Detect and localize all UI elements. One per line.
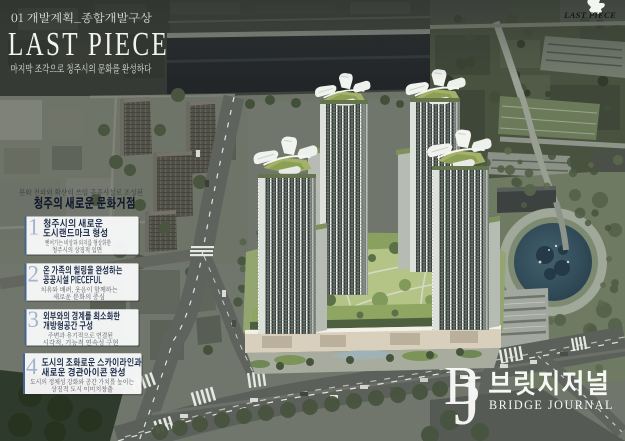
- svg-text:1: 1: [28, 215, 40, 240]
- svg-text:J: J: [454, 360, 482, 440]
- svg-text:BRIDGE JOURNAL: BRIDGE JOURNAL: [489, 398, 614, 412]
- svg-text:LAST PIECE: LAST PIECE: [563, 10, 616, 20]
- svg-text:2: 2: [28, 261, 40, 286]
- svg-text:3: 3: [28, 307, 40, 332]
- svg-text:LAST PIECE: LAST PIECE: [8, 27, 169, 63]
- svg-text:4: 4: [26, 354, 38, 379]
